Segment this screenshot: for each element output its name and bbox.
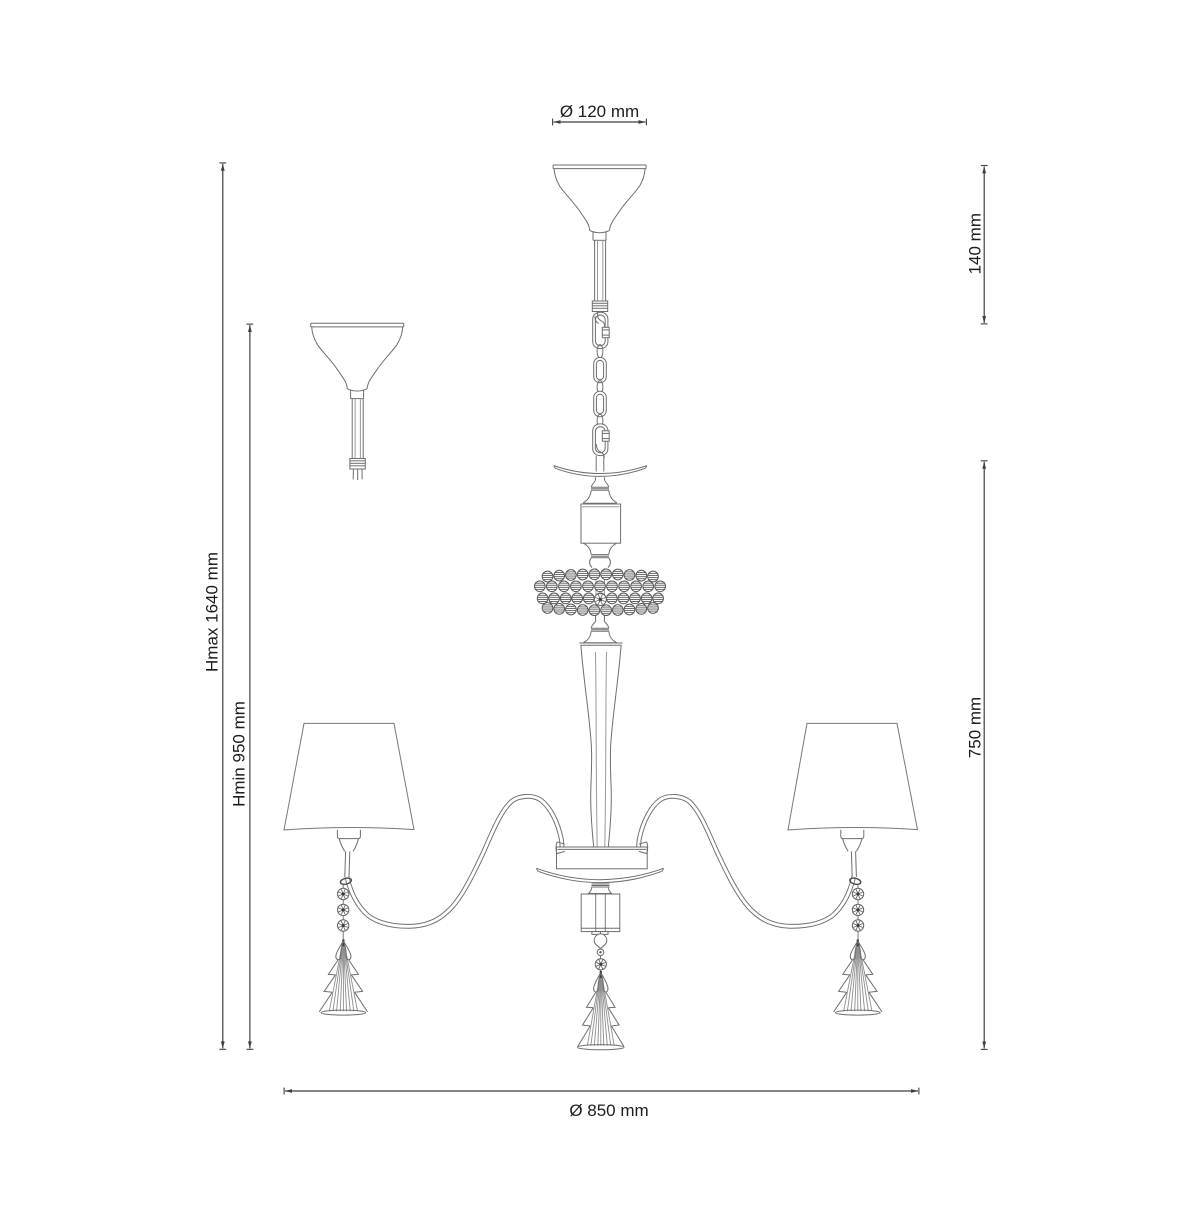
svg-text:750 mm: 750 mm: [965, 697, 984, 758]
svg-text:Hmax 1640 mm: Hmax 1640 mm: [203, 552, 222, 672]
svg-text:Ø 850 mm: Ø 850 mm: [569, 1101, 648, 1120]
svg-text:140 mm: 140 mm: [966, 213, 985, 274]
svg-text:Ø 120 mm: Ø 120 mm: [560, 102, 639, 121]
svg-text:Hmin 950 mm: Hmin 950 mm: [229, 701, 248, 807]
